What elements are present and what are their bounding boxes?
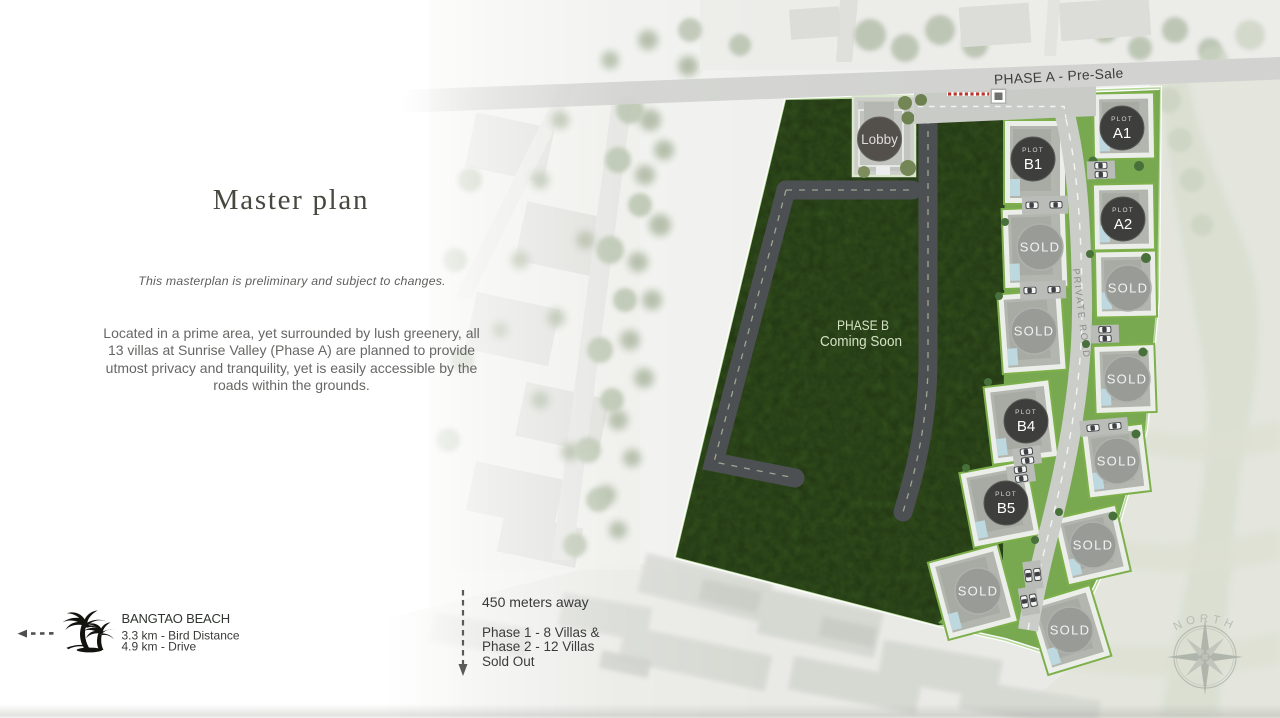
svg-text:SOLD: SOLD — [1014, 324, 1055, 339]
svg-text:Phase 1 - 8 Villas &: Phase 1 - 8 Villas & — [482, 625, 600, 640]
svg-text:4.9 km - Drive: 4.9 km - Drive — [122, 640, 197, 654]
svg-text:SOLD: SOLD — [1020, 240, 1061, 255]
svg-text:Lobby: Lobby — [861, 132, 898, 147]
svg-text:Coming Soon: Coming Soon — [820, 334, 902, 350]
svg-text:SOLD: SOLD — [1107, 372, 1148, 387]
svg-text:A2: A2 — [1114, 216, 1132, 233]
svg-text:SOLD: SOLD — [1073, 538, 1114, 553]
svg-text:SOLD: SOLD — [1097, 454, 1138, 469]
svg-text:SOLD: SOLD — [1050, 623, 1091, 638]
svg-text:B4: B4 — [1017, 418, 1035, 435]
svg-text:B5: B5 — [997, 500, 1015, 517]
svg-text:PLOT: PLOT — [1112, 207, 1134, 214]
svg-text:SOLD: SOLD — [958, 584, 999, 599]
svg-text:PLOT: PLOT — [1111, 116, 1133, 123]
svg-text:Sold Out: Sold Out — [482, 654, 535, 669]
svg-text:BANGTAO BEACH: BANGTAO BEACH — [122, 611, 230, 626]
svg-text:PLOT: PLOT — [1022, 147, 1044, 154]
svg-text:PLOT: PLOT — [1015, 409, 1037, 416]
svg-text:450 meters away: 450 meters away — [482, 594, 589, 610]
svg-text:B1: B1 — [1024, 156, 1042, 173]
svg-text:PLOT: PLOT — [995, 491, 1017, 498]
svg-text:SOLD: SOLD — [1108, 281, 1149, 296]
svg-text:A1: A1 — [1113, 125, 1131, 142]
svg-text:Phase 2 - 12 Villas: Phase 2 - 12 Villas — [482, 639, 595, 654]
svg-text:PHASE B: PHASE B — [837, 317, 889, 333]
